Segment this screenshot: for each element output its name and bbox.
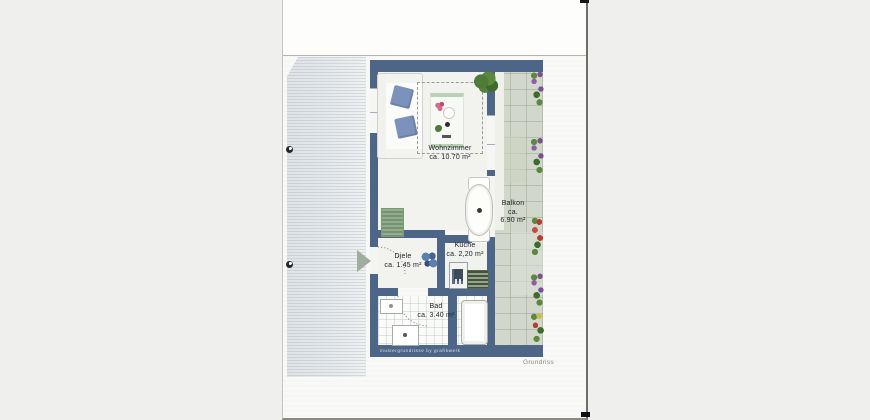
kitchen-sink bbox=[449, 262, 468, 289]
scan-shadow-column bbox=[287, 57, 366, 377]
room-area: ca. 3.40 m² bbox=[410, 312, 462, 321]
entrance-door-opening bbox=[370, 247, 378, 274]
sideboard bbox=[381, 208, 404, 237]
rug bbox=[430, 93, 464, 148]
room-area: ca. bbox=[488, 209, 538, 218]
room-area: ca. 2,20 m² bbox=[440, 251, 490, 260]
wall-bad-top bbox=[428, 288, 495, 296]
kitchen-counter bbox=[467, 270, 489, 289]
washbasin bbox=[380, 299, 403, 314]
entrance-arrow-icon bbox=[357, 250, 371, 272]
label-wohnzimmer: Wohnzimmer ca. 10.70 m² bbox=[400, 145, 500, 162]
window-right bbox=[487, 115, 495, 172]
room-name: Balkon bbox=[488, 200, 538, 209]
plan-caption: Grundriss bbox=[523, 359, 554, 366]
flower-box bbox=[529, 70, 546, 108]
punch-hole bbox=[286, 146, 293, 153]
room-name: Küche bbox=[440, 242, 490, 251]
scan-edge-mark bbox=[581, 412, 590, 417]
floor-plan: Wohnzimmer ca. 10.70 m² Balkon ca. 6.90 … bbox=[370, 58, 548, 360]
label-bad: Bad ca. 3.40 m² bbox=[410, 303, 462, 320]
shower-tray bbox=[392, 325, 419, 346]
plant bbox=[435, 125, 442, 132]
bathtub bbox=[461, 300, 488, 345]
wall-bad-top bbox=[378, 288, 398, 296]
room-name: Diele bbox=[378, 253, 428, 262]
label-kueche: Küche ca. 2,20 m² bbox=[440, 242, 490, 259]
punch-hole bbox=[286, 261, 293, 268]
page-top-band bbox=[283, 0, 586, 56]
table-decor bbox=[477, 208, 482, 213]
label-balkon: Balkon ca. 6.90 m² bbox=[488, 200, 538, 226]
label-diele: Diele ca. 1.45 m² bbox=[378, 253, 428, 270]
sink-detail bbox=[459, 279, 461, 286]
coffee-table bbox=[445, 122, 450, 127]
sink-detail bbox=[455, 279, 457, 286]
flower-box bbox=[529, 272, 546, 308]
room-area: 6.90 m² bbox=[488, 217, 538, 226]
side-table bbox=[443, 107, 455, 119]
room-name: Bad bbox=[410, 303, 462, 312]
flower-box bbox=[529, 136, 546, 176]
tv-board bbox=[442, 135, 451, 138]
room-area: ca. 1.45 m² bbox=[378, 262, 428, 271]
wall-top bbox=[370, 60, 543, 72]
flower-box bbox=[529, 310, 546, 344]
scan-edge-mark bbox=[580, 0, 589, 3]
sofa-pillow bbox=[390, 85, 414, 109]
wall-left bbox=[370, 274, 378, 345]
sofa-pillow bbox=[394, 115, 418, 139]
sink-basin bbox=[452, 269, 463, 284]
watermark-text: mustergrundrisse by grafikwerk bbox=[380, 348, 461, 353]
plant-bush bbox=[474, 72, 498, 93]
room-name: Wohnzimmer bbox=[400, 145, 500, 154]
room-area: ca. 10.70 m² bbox=[400, 154, 500, 163]
